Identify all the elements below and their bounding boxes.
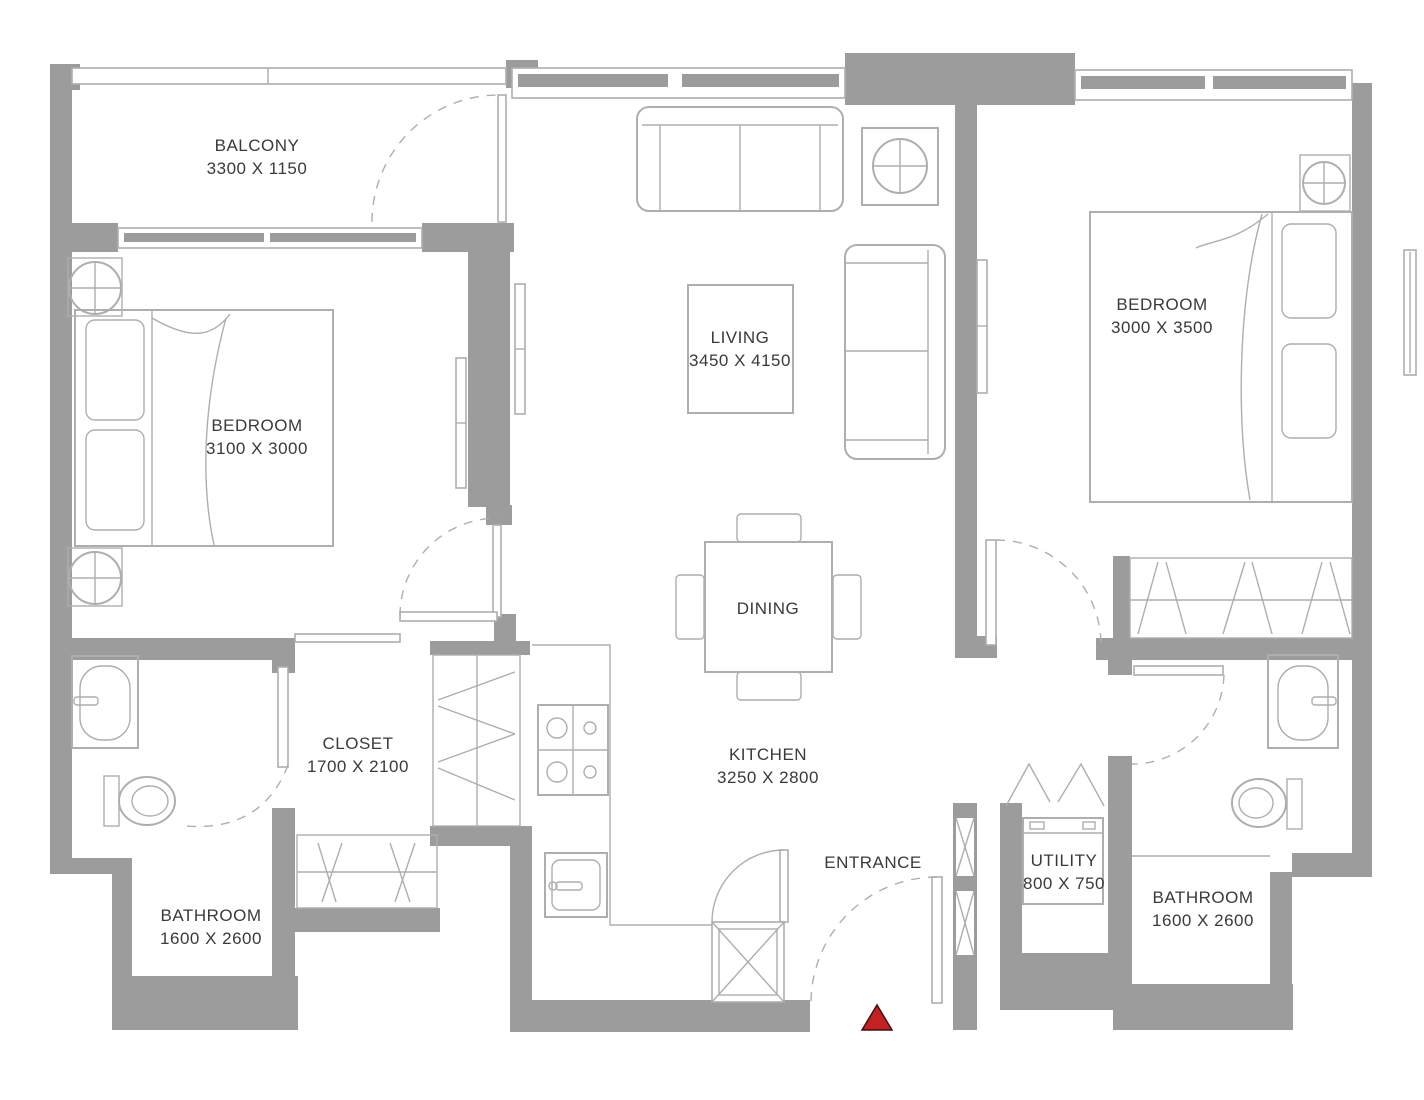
shaft-box-icon [712, 922, 784, 1002]
closet-label: CLOSET [322, 734, 393, 753]
bathroom-left-toilet-icon [104, 776, 175, 826]
coffee-table [688, 285, 793, 413]
double-bed-right [1090, 212, 1352, 502]
bathroom-left-door-icon [186, 667, 288, 826]
kitchen-counter [532, 645, 712, 925]
floor-plan-svg: BALCONY 3300 X 1150 BEDROOM 3100 X 3000 … [0, 0, 1424, 1100]
entrance-marker [862, 1005, 892, 1030]
bathroom-right-dims: 1600 X 2600 [1152, 911, 1254, 930]
balcony-door-icon [372, 95, 506, 222]
living-dims: 3450 X 4150 [689, 351, 791, 370]
bathroom-right-toilet-icon [1132, 779, 1302, 856]
bathroom-left-label: BATHROOM [161, 906, 262, 925]
utility-dims: 800 X 750 [1023, 874, 1105, 893]
dining-label: DINING [737, 599, 800, 618]
shaft-column-icon [953, 803, 977, 1030]
light-fixture-icon [68, 258, 122, 316]
entrance-door-icon [811, 877, 942, 1003]
bathroom-left-dims: 1600 X 2600 [160, 929, 262, 948]
bedroom-left-dims: 3100 X 3000 [206, 439, 308, 458]
light-fixture-icon [1300, 155, 1350, 211]
kitchen-label: KITCHEN [729, 745, 807, 764]
wardrobe-bedroom-right [1130, 558, 1352, 638]
sofa-top [637, 107, 843, 211]
kitchen-door-icon [712, 850, 788, 922]
utility-bifold-door-icon [1006, 764, 1104, 806]
entrance-label: ENTRANCE [824, 853, 922, 872]
balcony-label: BALCONY [215, 136, 300, 155]
side-table-lamp-icon [862, 128, 938, 205]
bedroom-right-label: BEDROOM [1116, 295, 1207, 314]
living-window-icon [512, 68, 845, 98]
exterior-side-window-icon [1404, 250, 1416, 375]
bathroom-right-door-icon [1132, 666, 1224, 764]
bathroom-right-label: BATHROOM [1153, 888, 1254, 907]
bedroom-right-dims: 3000 X 3500 [1111, 318, 1213, 337]
kitchen-sink-icon [545, 853, 607, 917]
light-fixture-icon [68, 548, 122, 606]
closet-wardrobe-bottom [297, 835, 437, 908]
utility-label: UTILITY [1031, 851, 1098, 870]
bedroom-right-door-icon [986, 540, 1101, 645]
bedroom-left-label: BEDROOM [211, 416, 302, 435]
bedroom-left-window-icon [118, 228, 422, 248]
stove-icon [538, 705, 608, 795]
floor-plan-page: BALCONY 3300 X 1150 BEDROOM 3100 X 3000 … [0, 0, 1424, 1100]
bathroom-right-sink-icon [1268, 655, 1338, 748]
sofa-right [845, 245, 945, 459]
bedroom-left-door-icon [400, 518, 498, 621]
balcony-dims: 3300 X 1150 [207, 159, 308, 178]
kitchen-dims: 3250 X 2800 [717, 768, 819, 787]
closet-dims: 1700 X 2100 [307, 757, 409, 776]
closet-cabinet-tall [433, 655, 520, 826]
bathroom-left-sink-icon [72, 656, 138, 748]
bedroom-right-sliding-door-icon [977, 260, 987, 393]
bedroom-right-window-icon [1075, 70, 1352, 100]
balcony-railing-icon [72, 68, 506, 84]
living-label: LIVING [711, 328, 770, 347]
